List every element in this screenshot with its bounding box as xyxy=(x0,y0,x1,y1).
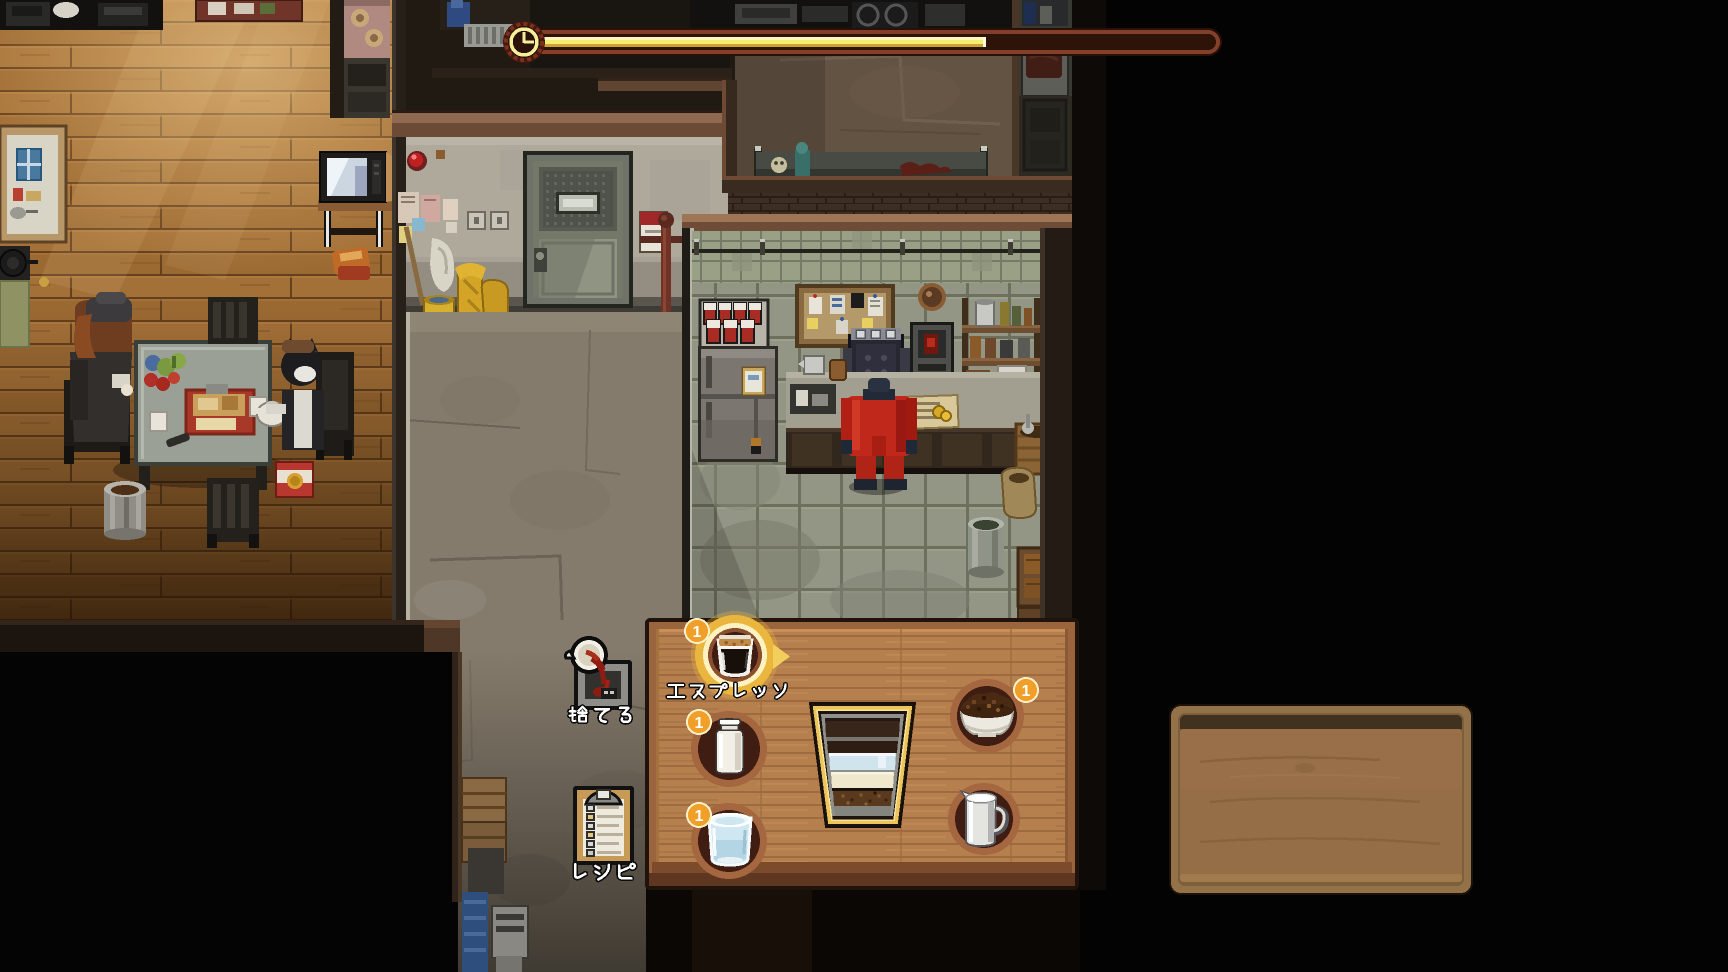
svg-text:1: 1 xyxy=(695,715,704,732)
svg-text:1: 1 xyxy=(1022,683,1031,700)
svg-text:1: 1 xyxy=(695,808,704,825)
svg-text:1: 1 xyxy=(693,624,702,641)
